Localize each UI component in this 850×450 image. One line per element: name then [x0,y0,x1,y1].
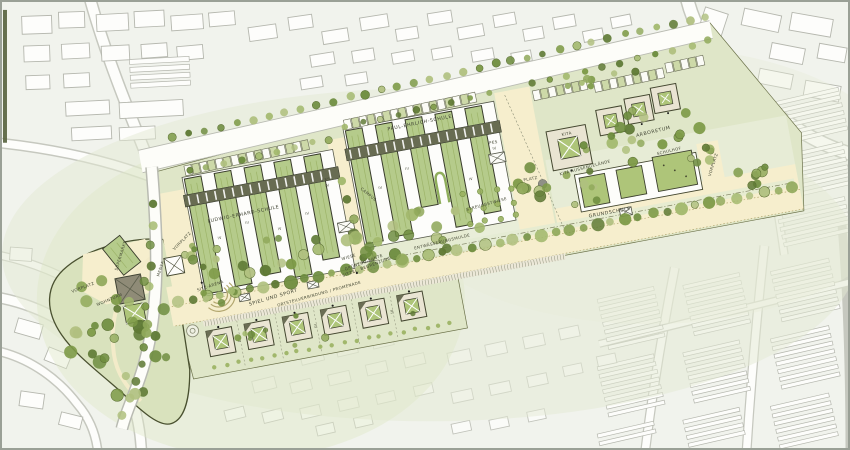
plan-canvas: IIIIIIIII SUPERMARKT WOHNTURM VORPLATZ M… [2,2,848,448]
storey-label: III [389,310,394,315]
building-mensa [164,255,185,276]
left-edge-greenline [3,10,7,143]
site-plan-image: IIIIIIIII SUPERMARKT WOHNTURM VORPLATZ M… [0,0,850,450]
storey-label: III [405,166,410,171]
storey-label: III [313,324,318,329]
storey-label: III [245,220,250,225]
